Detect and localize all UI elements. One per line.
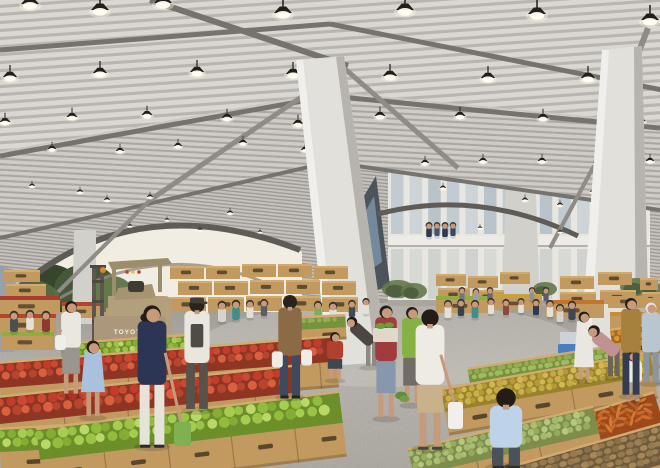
empty-crate-stack xyxy=(314,266,348,279)
empty-crate-stack xyxy=(598,272,632,285)
empty-crate-stack xyxy=(640,278,658,290)
empty-crate-stack xyxy=(214,281,248,295)
empty-crate-stack xyxy=(242,264,276,277)
empty-crate-stack xyxy=(560,276,594,289)
empty-crate-stack xyxy=(436,274,466,286)
empty-crate-stack xyxy=(278,264,312,277)
empty-crate-stack xyxy=(322,281,356,295)
distant-person xyxy=(26,310,34,333)
distant-person xyxy=(232,300,240,323)
empty-crate-stack xyxy=(250,280,284,294)
distant-person xyxy=(218,301,227,325)
distant-person xyxy=(10,311,19,335)
empty-crate-stack xyxy=(286,280,320,294)
distant-person xyxy=(568,301,576,323)
pavilion-window-upper xyxy=(391,171,404,234)
distant-person xyxy=(434,222,441,239)
pavilion-window-lower xyxy=(558,249,571,299)
market-stall-crate xyxy=(2,332,54,350)
pendant-light-icon xyxy=(152,0,174,11)
distant-person xyxy=(450,222,457,239)
empty-crate-stack xyxy=(468,276,498,288)
empty-crate-stack xyxy=(6,284,46,297)
pavilion-window-upper xyxy=(410,171,423,234)
distant-person xyxy=(42,311,51,335)
empty-crate-stack xyxy=(500,272,530,284)
empty-crate-stack xyxy=(4,270,40,282)
market-hall-rendering: TOYOTA xyxy=(0,0,660,468)
market-scene-canvas: TOYOTA xyxy=(0,0,660,468)
bush xyxy=(403,287,419,298)
empty-crate-stack xyxy=(206,266,240,279)
empty-crate-stack xyxy=(170,266,204,279)
empty-crate-stack xyxy=(178,281,212,295)
